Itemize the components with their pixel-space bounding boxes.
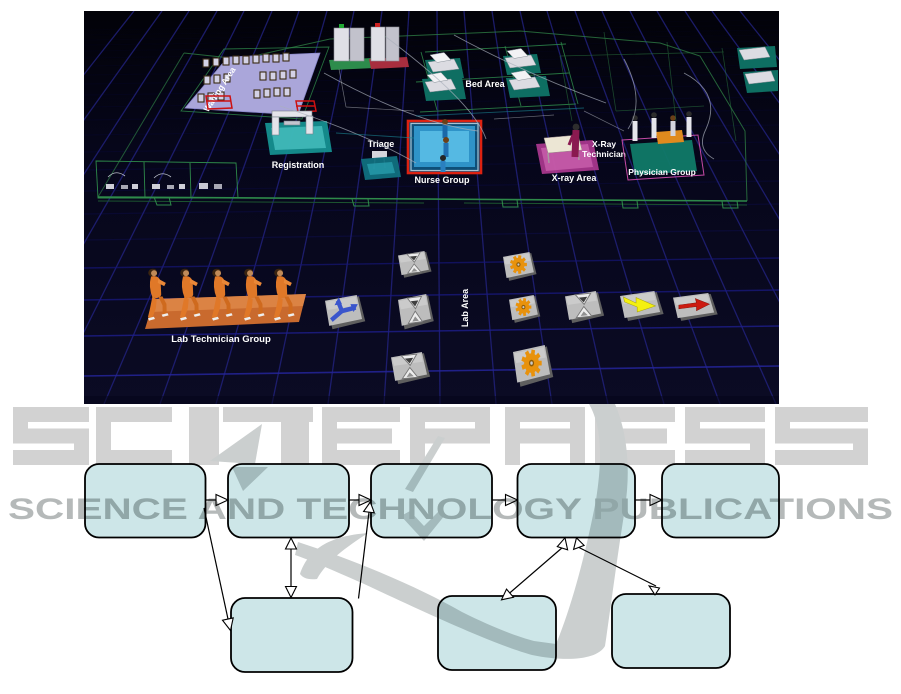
svg-text:SCIENCE AND TECHNOLOGY PUBLICA: SCIENCE AND TECHNOLOGY PUBLICATIONS: [8, 493, 893, 526]
